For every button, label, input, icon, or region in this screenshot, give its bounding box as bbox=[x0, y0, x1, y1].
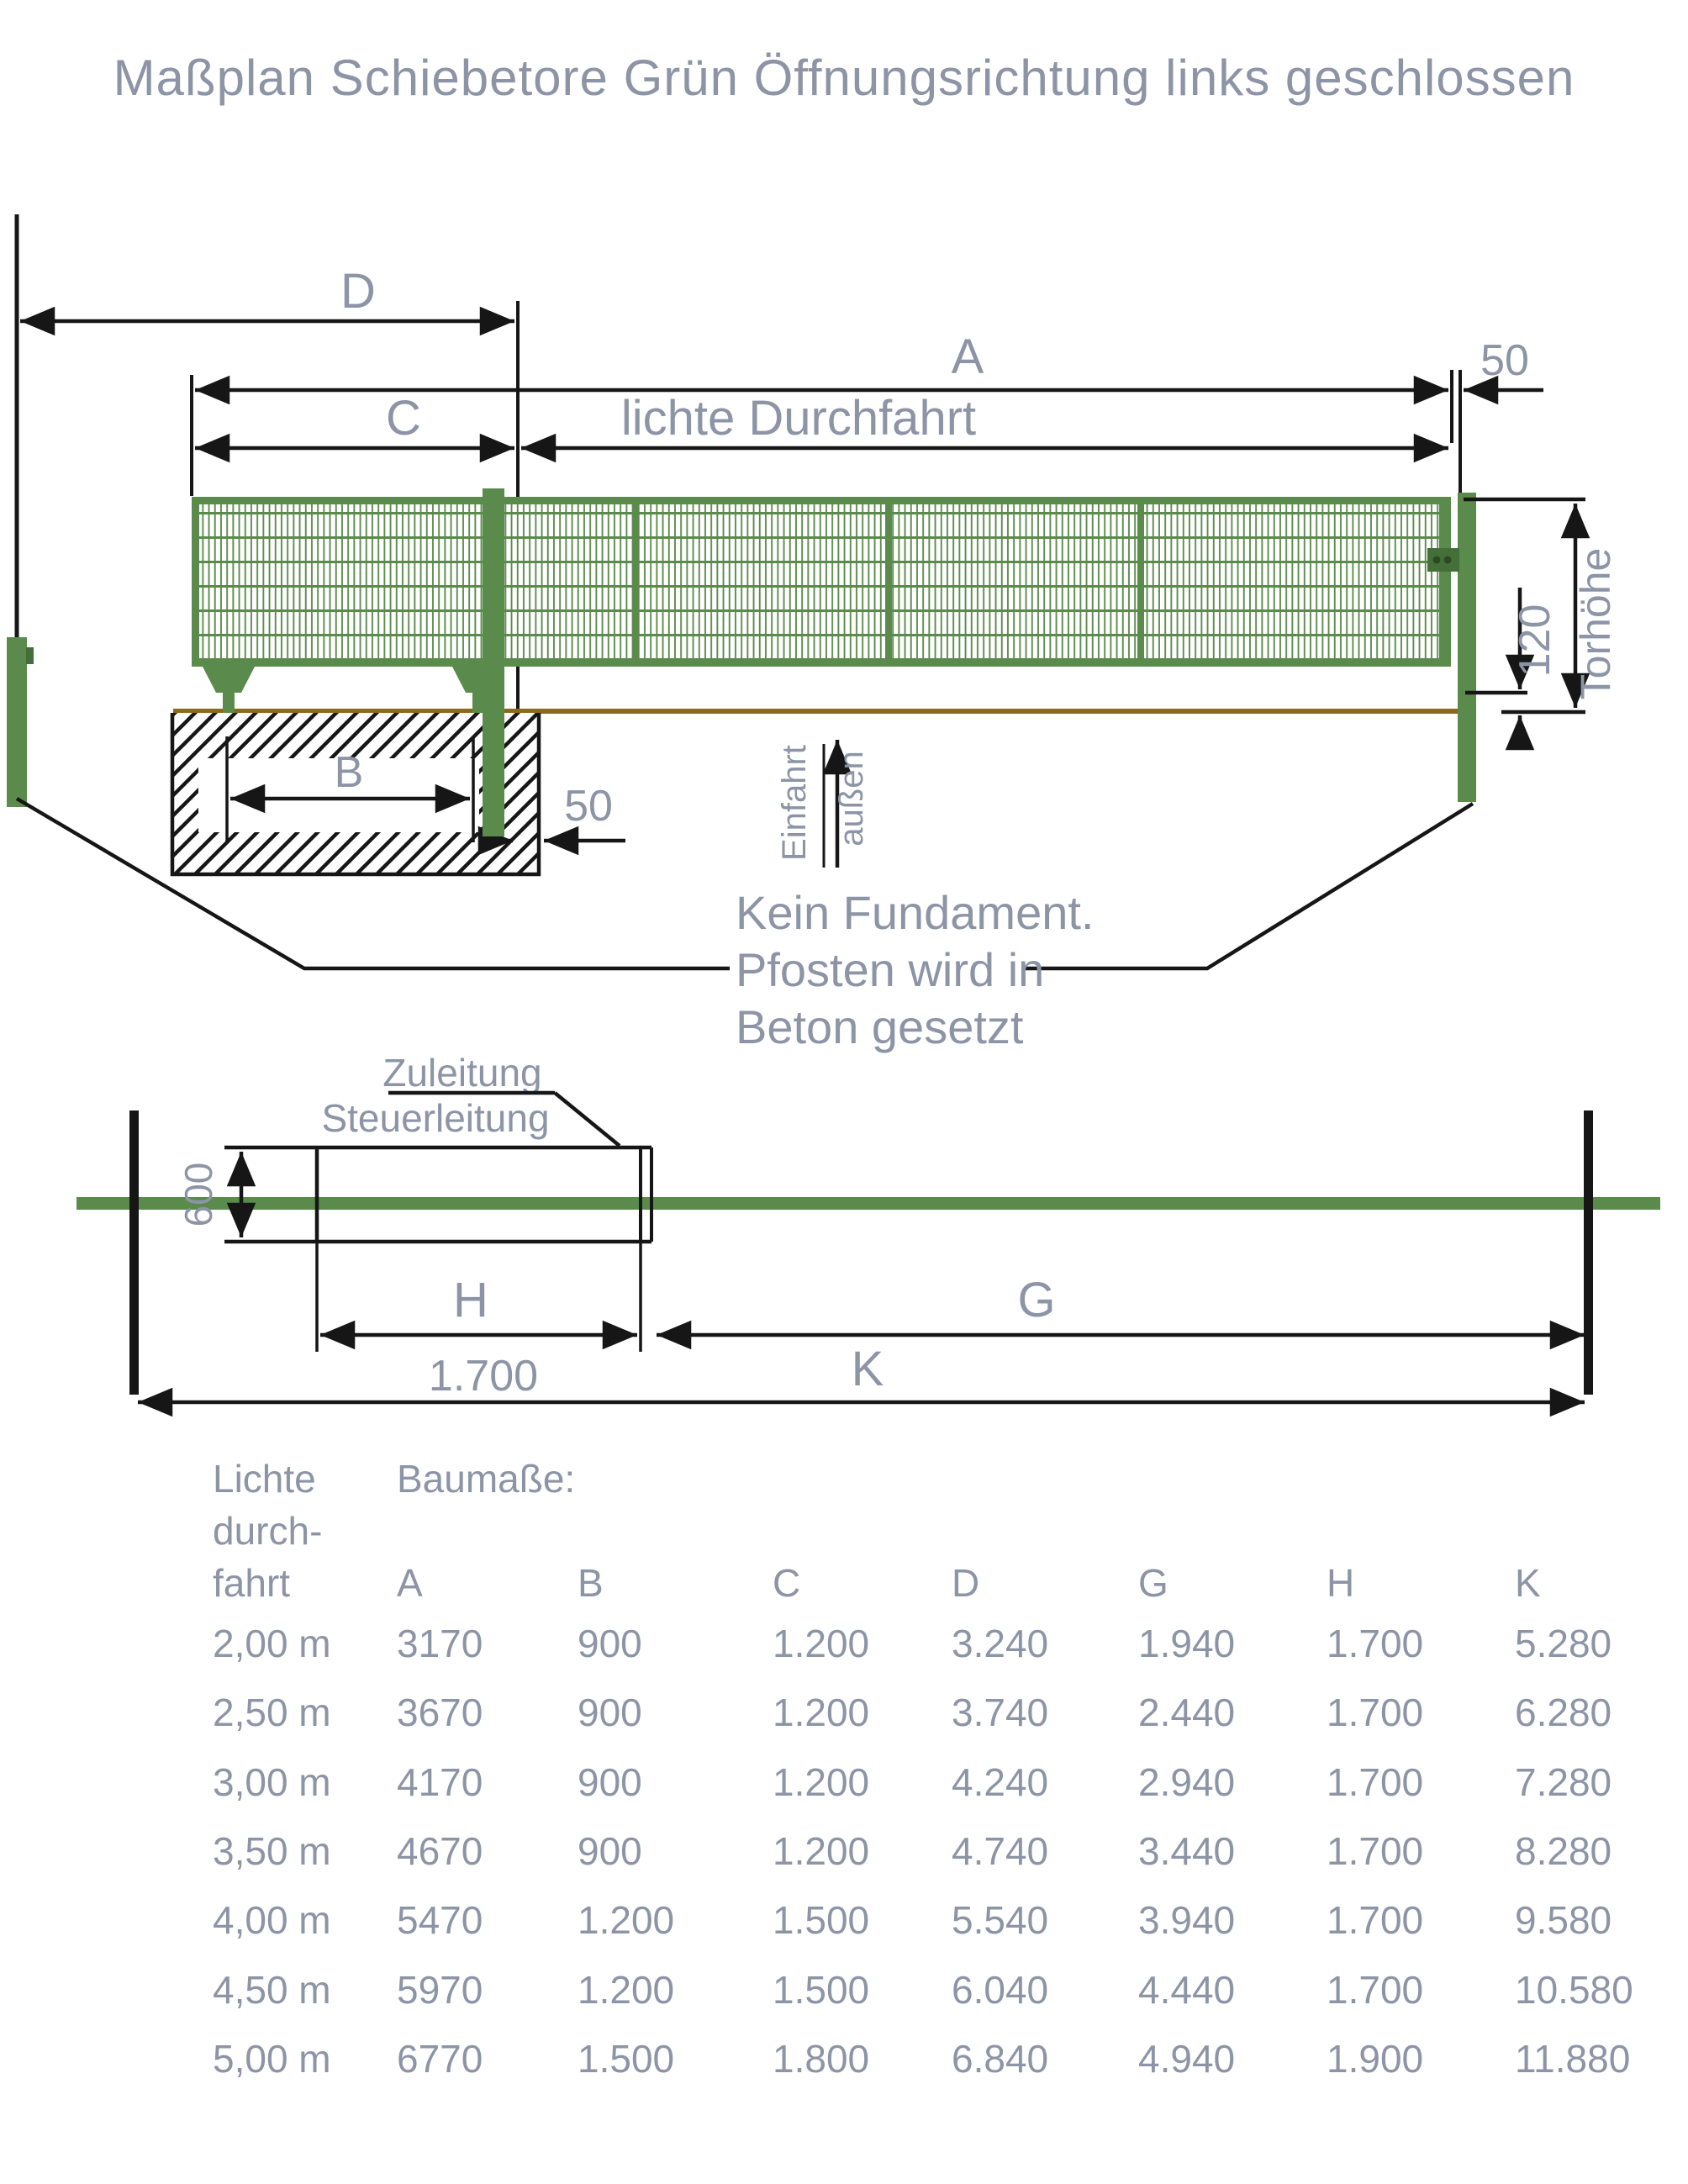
table-cell: 6.040 bbox=[952, 1955, 1138, 2023]
table-cell: 3.740 bbox=[952, 1678, 1138, 1747]
table-cell: 1.800 bbox=[773, 2024, 952, 2093]
table-cell: 11.880 bbox=[1515, 2024, 1688, 2093]
table-cell: 1.200 bbox=[773, 1678, 952, 1747]
table-cell: 1.700 bbox=[1327, 1817, 1515, 1886]
table-cell: 7.280 bbox=[1515, 1748, 1688, 1817]
table-cell: 3.240 bbox=[952, 1609, 1138, 1678]
dim-label-H: H bbox=[453, 1273, 488, 1327]
elevation-view: D A 50 C lichte Durchfahrt bbox=[7, 214, 1619, 1053]
gate-divider-2 bbox=[885, 497, 892, 667]
dim-label-C: C bbox=[386, 391, 421, 446]
latch-bolt-1 bbox=[1433, 557, 1441, 564]
note-line-1: Kein Fundament. bbox=[736, 886, 1094, 939]
table-cell: 1.700 bbox=[1327, 1748, 1515, 1817]
table-cell: 1.200 bbox=[578, 1886, 773, 1955]
zuleitung-label: Zuleitung bbox=[382, 1051, 541, 1095]
table-cell: 4.440 bbox=[1138, 1955, 1327, 2023]
table-cell: 1.500 bbox=[773, 1955, 952, 2023]
table-cell: 5470 bbox=[397, 1886, 578, 1955]
direction-indicator: Einfahrt außen bbox=[776, 740, 870, 868]
dimension-table: Lichte durch- fahrt Baumaße: A B C D G H… bbox=[213, 1453, 1688, 2093]
steuerleitung-label: Steuerleitung bbox=[321, 1096, 549, 1140]
latch-body bbox=[1427, 548, 1459, 572]
table-cell: 4.240 bbox=[952, 1748, 1138, 1817]
gate-divider-3 bbox=[1137, 497, 1144, 667]
table-cell: 1.200 bbox=[773, 1748, 952, 1817]
table-cell: 1.200 bbox=[773, 1609, 952, 1678]
plan-left-post bbox=[129, 1110, 139, 1395]
gate-leaf bbox=[192, 497, 1451, 713]
dim-label-B: B bbox=[335, 748, 364, 797]
table-cell: 3,50 m bbox=[213, 1817, 397, 1886]
gate-height-dims: 120 Torhöhe bbox=[1464, 499, 1619, 750]
table-cell: 10.580 bbox=[1515, 1955, 1688, 2023]
table-cell: 4670 bbox=[397, 1817, 578, 1886]
gate-bottom-rail bbox=[192, 659, 1451, 667]
latch-bolt-2 bbox=[1444, 557, 1452, 564]
einfahrt-label: Einfahrt bbox=[776, 745, 813, 861]
table-cell: 6770 bbox=[397, 2024, 578, 2093]
table-cell: 3170 bbox=[397, 1609, 578, 1678]
table-cell: 4,50 m bbox=[213, 1955, 397, 2023]
plan-right-post bbox=[1584, 1110, 1593, 1395]
table-col1-header-line2: durch- bbox=[213, 1505, 397, 1557]
table-cell: 6.280 bbox=[1515, 1678, 1688, 1747]
dim-label-50-bottom: 50 bbox=[564, 782, 613, 831]
table-cell: 1.200 bbox=[773, 1817, 952, 1886]
table-cell: 3.440 bbox=[1138, 1817, 1327, 1886]
gate-foot-2-stem bbox=[472, 693, 484, 713]
table-col1-header-line1: Lichte bbox=[213, 1453, 397, 1505]
left-green-post bbox=[7, 637, 27, 807]
gate-foot-1-stem bbox=[223, 693, 235, 713]
cable-leader: Zuleitung Steuerleitung bbox=[321, 1051, 620, 1146]
table-cell: 2,00 m bbox=[213, 1609, 397, 1678]
table-column-header-G: G bbox=[1138, 1557, 1327, 1609]
gate-mesh bbox=[192, 497, 1451, 667]
table-cell: 1.700 bbox=[1327, 1955, 1515, 2023]
table-column-header-A: A bbox=[397, 1557, 578, 1609]
table-cell: 1.700 bbox=[1327, 1886, 1515, 1955]
table-cell: 1.500 bbox=[773, 1886, 952, 1955]
table-cell: 4170 bbox=[397, 1748, 578, 1817]
table-cell: 4.940 bbox=[1138, 2024, 1327, 2093]
table-col1-header-line3: fahrt bbox=[213, 1557, 397, 1609]
table-cell: 900 bbox=[578, 1748, 773, 1817]
table-cell: 5,00 m bbox=[213, 2024, 397, 2093]
table-cell: 5.540 bbox=[952, 1886, 1138, 1955]
gate-top-rail bbox=[192, 497, 1451, 504]
table-cell: 2,50 m bbox=[213, 1678, 397, 1747]
table-cell: 9.580 bbox=[1515, 1886, 1688, 1955]
dim-label-50-top: 50 bbox=[1480, 336, 1529, 385]
plan-view: 600 Zuleitung Steuerleitung H 1.700 G K bbox=[76, 1051, 1660, 1402]
dim-label-120: 120 bbox=[1511, 604, 1559, 678]
table-cell: 900 bbox=[578, 1678, 773, 1747]
gate-end-bar bbox=[1439, 497, 1451, 667]
table-column-header-C: C bbox=[773, 1557, 952, 1609]
table-column-header-D: D bbox=[952, 1557, 1138, 1609]
table-cell: 1.940 bbox=[1138, 1609, 1327, 1678]
page-title: Maßplan Schiebetore Grün Öffnungsrichtun… bbox=[0, 49, 1688, 107]
dim-label-torhoehe: Torhöhe bbox=[1572, 548, 1619, 700]
table-cell: 8.280 bbox=[1515, 1817, 1688, 1886]
table-column-header-H: H bbox=[1327, 1557, 1515, 1609]
table-cell: 4.740 bbox=[952, 1817, 1138, 1886]
table-cell: 1.200 bbox=[578, 1955, 773, 2023]
catch-post bbox=[1458, 493, 1476, 802]
leader-diagonal bbox=[555, 1093, 620, 1146]
dim-label-A: A bbox=[952, 330, 984, 384]
table-cell: 6.840 bbox=[952, 2024, 1138, 2093]
table-cell: 1.700 bbox=[1327, 1678, 1515, 1747]
table-cell: 5.280 bbox=[1515, 1609, 1688, 1678]
gate-foot-1 bbox=[203, 667, 255, 693]
table-cell: 1.500 bbox=[578, 2024, 773, 2093]
dim-label-G: G bbox=[1017, 1273, 1055, 1327]
left-green-post-bracket bbox=[26, 647, 34, 664]
gate-divider-1 bbox=[632, 497, 639, 667]
dim-label-D: D bbox=[340, 264, 376, 319]
table-cell: 5970 bbox=[397, 1955, 578, 2023]
aussen-label: außen bbox=[833, 751, 870, 846]
dim-label-600: 600 bbox=[177, 1163, 220, 1227]
table-cell: 4,00 m bbox=[213, 1886, 397, 1955]
gate-latch bbox=[1427, 548, 1459, 572]
table-cell: 2.940 bbox=[1138, 1748, 1327, 1817]
dim-label-clear-width: lichte Durchfahrt bbox=[621, 391, 976, 446]
note-line-2: Pfosten wird in bbox=[736, 943, 1044, 996]
note-line-3: Beton gesetzt bbox=[736, 1000, 1024, 1053]
table-cell: 3,00 m bbox=[213, 1748, 397, 1817]
table-cell: 2.440 bbox=[1138, 1678, 1327, 1747]
plan-sheet: Maßplan Schiebetore Grün Öffnungsrichtun… bbox=[0, 0, 1688, 2184]
table-cell: 1.700 bbox=[1327, 1609, 1515, 1678]
table-cell: 900 bbox=[578, 1817, 773, 1886]
fence-line-plan bbox=[76, 1197, 1660, 1210]
guide-post bbox=[483, 488, 504, 836]
table-column-header-K: K bbox=[1515, 1557, 1688, 1609]
dim-label-K: K bbox=[852, 1342, 884, 1396]
table-group-header: Baumaße: bbox=[397, 1453, 578, 1505]
plan-gate-outline bbox=[224, 1147, 651, 1352]
dim-value-H: 1.700 bbox=[429, 1352, 538, 1401]
table-cell: 3670 bbox=[397, 1678, 578, 1747]
table-cell: 900 bbox=[578, 1609, 773, 1678]
gate-left-bar bbox=[192, 497, 199, 667]
table-column-header-B: B bbox=[578, 1557, 773, 1609]
table-cell: 1.900 bbox=[1327, 2024, 1515, 2093]
technical-drawing: D A 50 C lichte Durchfahrt bbox=[0, 143, 1688, 1453]
table-cell: 3.940 bbox=[1138, 1886, 1327, 1955]
